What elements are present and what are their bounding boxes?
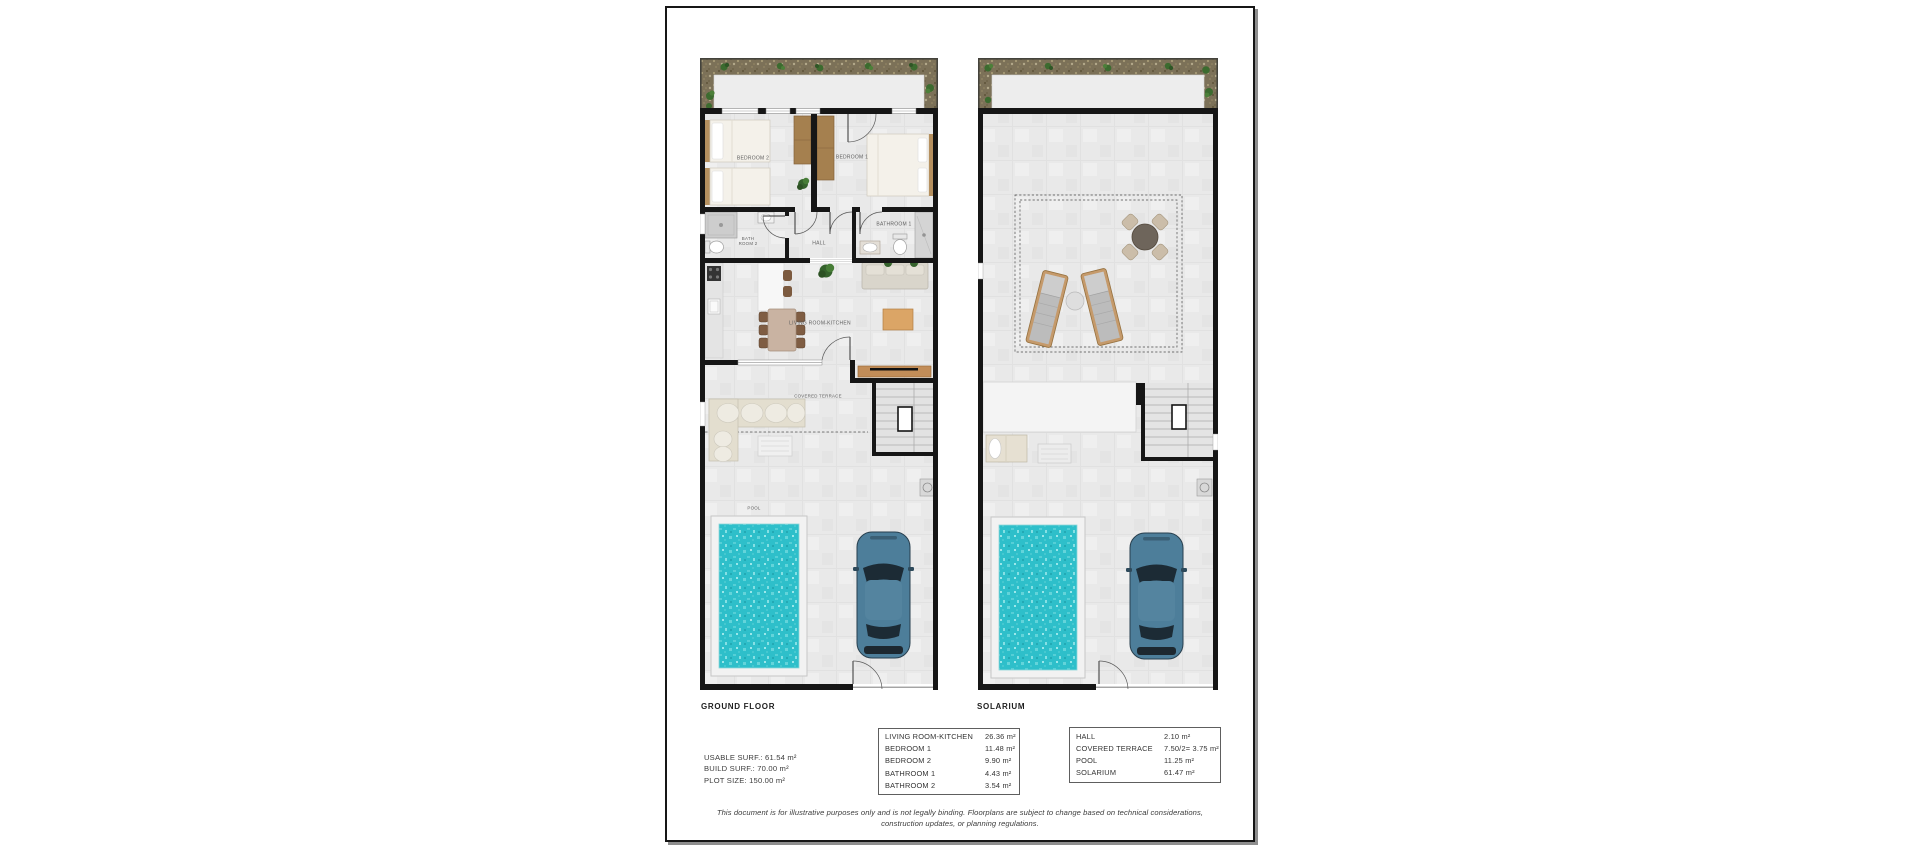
bathroom2-label-line2: ROOM 2: [739, 242, 758, 247]
terrace-roof-slab: [983, 382, 1136, 432]
table-row: BATHROOM 23.54 m²: [879, 780, 1019, 792]
disclaimer-line2: construction updates, or planning regula…: [667, 818, 1253, 829]
row-value: 11.48 m²: [985, 743, 1015, 755]
surface-stats: USABLE SURF.: 61.54 m² BUILD SURF.: 70.0…: [704, 752, 797, 786]
front-garden: [978, 58, 1218, 110]
staircase: [1136, 383, 1216, 461]
row-value: 4.43 m²: [985, 768, 1011, 780]
staircase: [872, 383, 938, 456]
table-row: LIVING ROOM-KITCHEN26.36 m²: [879, 731, 1019, 743]
ground-floor-plan: BEDROOM 2 BEDROOM 1 BATHROOM 2 HALL BATH…: [700, 58, 938, 690]
table-row: BATHROOM 14.43 m²: [879, 768, 1019, 780]
ground-floor-areas-table: LIVING ROOM-KITCHEN26.36 m² BEDROOM 111.…: [878, 728, 1020, 795]
row-label: BEDROOM 1: [879, 743, 985, 755]
bedroom2-label: BEDROOM 2: [737, 156, 769, 161]
row-value: 2.10 m²: [1164, 731, 1190, 743]
terrace-side-table: [758, 436, 792, 456]
row-label: LIVING ROOM-KITCHEN: [879, 731, 985, 743]
table-row: HALL2.10 m²: [1070, 731, 1220, 743]
solarium-areas-table: HALL2.10 m² COVERED TERRACE7.50/2= 3.75 …: [1069, 727, 1221, 783]
pool-label: POOL: [747, 507, 760, 512]
pool: [991, 517, 1085, 678]
daybed: [986, 435, 1027, 462]
row-value: 9.90 m²: [985, 755, 1011, 767]
table-row: SOLARIUM61.47 m²: [1070, 767, 1220, 779]
row-value: 11.25 m²: [1164, 755, 1194, 767]
table-row: COVERED TERRACE7.50/2= 3.75 m²: [1070, 743, 1220, 755]
row-label: BATHROOM 1: [879, 768, 985, 780]
floorplan-sheet: BEDROOM 2 BEDROOM 1 BATHROOM 2 HALL BATH…: [665, 6, 1255, 842]
row-label: SOLARIUM: [1070, 767, 1164, 779]
disclaimer-line1: This document is for illustrative purpos…: [667, 807, 1253, 818]
ground-floor-caption: GROUND FLOOR: [701, 702, 775, 711]
row-value: 3.54 m²: [985, 780, 1011, 792]
bathroom1-label: BATHROOM 1: [876, 222, 911, 227]
row-label: BATHROOM 2: [879, 780, 985, 792]
covered-terrace-label: COVERED TERRACE: [794, 395, 842, 400]
ac-unit: [1197, 479, 1212, 496]
pool: [711, 516, 807, 676]
row-label: BEDROOM 2: [879, 755, 985, 767]
build-surface: BUILD SURF.: 70.00 m²: [704, 763, 797, 774]
row-label: HALL: [1070, 731, 1164, 743]
side-table: [1038, 444, 1071, 463]
table-row: POOL11.25 m²: [1070, 755, 1220, 767]
front-garden: [700, 58, 938, 110]
row-value: 61.47 m²: [1164, 767, 1195, 779]
ground-floor-drawing: [700, 58, 938, 690]
row-value: 7.50/2= 3.75 m²: [1164, 743, 1219, 755]
usable-surface: USABLE SURF.: 61.54 m²: [704, 752, 797, 763]
row-label: POOL: [1070, 755, 1164, 767]
dining-set: [759, 309, 805, 351]
hall-label: HALL: [812, 241, 826, 246]
solarium-drawing: [978, 58, 1218, 690]
table-row: BEDROOM 29.90 m²: [879, 755, 1019, 767]
solarium-caption: SOLARIUM: [977, 702, 1025, 711]
tv-unit: [858, 366, 931, 377]
small-round-table: [1066, 292, 1084, 310]
row-value: 26.36 m²: [985, 731, 1016, 743]
bathroom2-label: BATHROOM 2: [739, 237, 758, 247]
table-row: BEDROOM 111.48 m²: [879, 743, 1019, 755]
living-kitchen-label: LIVING ROOM-KITCHEN: [789, 321, 851, 326]
car: [853, 532, 914, 658]
solarium-plan: [978, 58, 1218, 690]
legal-disclaimer: This document is for illustrative purpos…: [667, 807, 1253, 829]
bedroom1-label: BEDROOM 1: [836, 155, 868, 160]
coffee-table: [883, 309, 913, 330]
plot-size: PLOT SIZE: 150.00 m²: [704, 775, 797, 786]
row-label: COVERED TERRACE: [1070, 743, 1164, 755]
car: [1126, 533, 1187, 659]
ac-unit: [920, 479, 935, 496]
